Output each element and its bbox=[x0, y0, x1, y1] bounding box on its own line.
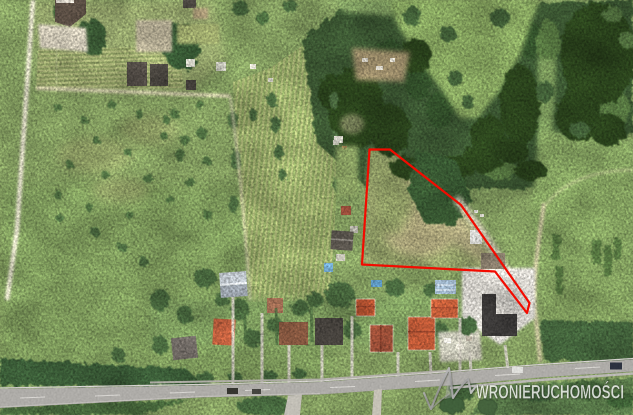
svg-text:WRONIERUCHOMOŚCI: WRONIERUCHOMOŚCI bbox=[476, 380, 624, 404]
